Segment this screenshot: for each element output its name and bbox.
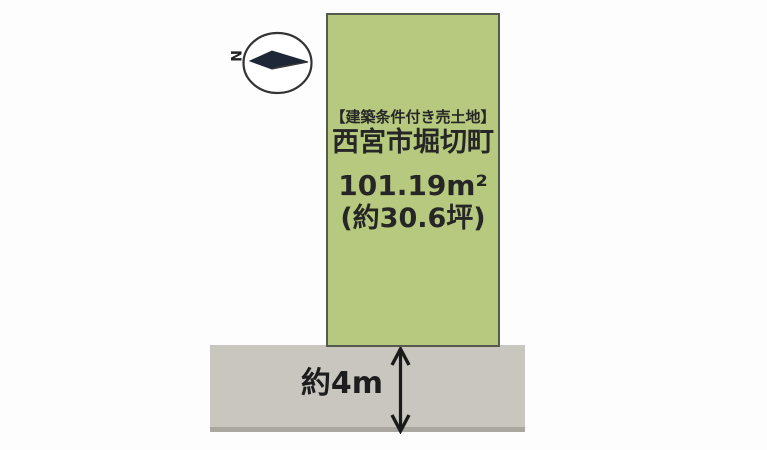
compass-icon	[238, 26, 318, 102]
plot-area-tsubo-label: (約30.6坪)	[328, 203, 498, 235]
compass-north-label: N	[227, 48, 243, 64]
land-plot-diagram: 約4m 【建築条件付き売土地】 西宮市堀切町 101.19m² (約30.6坪)…	[0, 0, 767, 450]
land-plot: 【建築条件付き売土地】 西宮市堀切町 101.19m² (約30.6坪)	[326, 13, 500, 347]
sale-condition-tag: 【建築条件付き売土地】	[328, 108, 498, 127]
plot-area-sqm-label: 101.19m²	[328, 170, 498, 202]
plot-location-label: 西宮市堀切町	[328, 127, 498, 158]
road-width-arrow-icon	[388, 346, 413, 434]
road-width-label: 約4m	[258, 367, 383, 401]
